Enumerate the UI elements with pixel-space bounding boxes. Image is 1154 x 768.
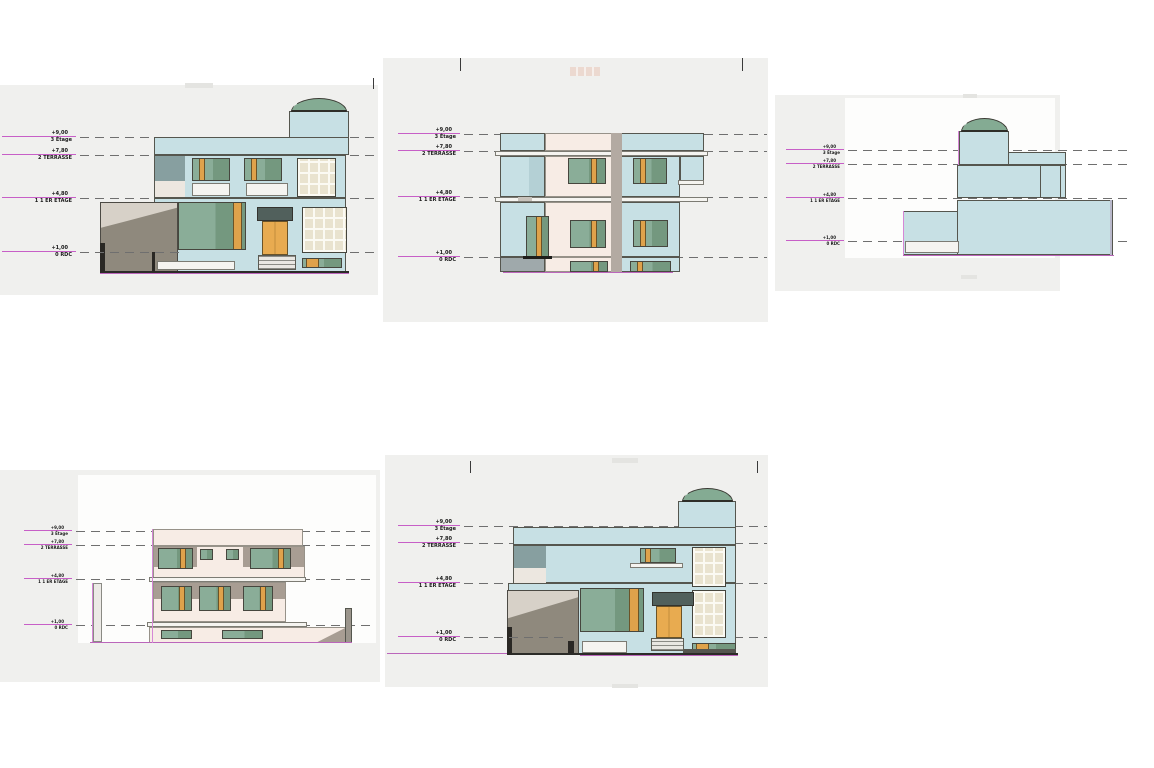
level-label: +9,003 Étage — [786, 144, 844, 155]
level-label: +7,802 TERRASSE — [398, 536, 460, 549]
window — [633, 220, 668, 247]
edge-marker — [1110, 200, 1112, 255]
level-label: +4,801 1 ER ETAGE — [786, 192, 844, 203]
window-frame-strip — [233, 203, 242, 249]
window — [161, 586, 192, 611]
level-label: +9,003 Étage — [2, 130, 76, 143]
floor-slab — [149, 577, 306, 582]
level-label: +9,003 Étage — [24, 525, 72, 536]
title-mark — [612, 458, 638, 463]
dome-tower — [678, 501, 736, 528]
base-left — [500, 257, 545, 272]
window — [244, 158, 282, 181]
edge-marker — [152, 529, 153, 643]
window-frame-strip — [260, 587, 266, 610]
window-frame-strip — [591, 221, 597, 247]
ground-line-magenta — [100, 273, 349, 274]
ground-line-magenta — [90, 642, 352, 643]
ground-line-magenta — [503, 272, 673, 273]
slate-panel — [514, 546, 546, 568]
entry-door — [656, 606, 682, 638]
reference-tick — [460, 58, 461, 71]
level-label: +4,801 1 ER ETAGE — [2, 191, 76, 204]
window-frame-strip — [278, 549, 284, 568]
level-label: +9,003 Étage — [398, 127, 460, 140]
roof-band-left — [500, 133, 545, 151]
window-frame-strip — [180, 549, 186, 568]
wall-shadow-fold — [529, 157, 544, 196]
window-frame-strip — [199, 159, 205, 180]
level-label: +4,801 1 ER ETAGE — [24, 573, 72, 584]
large-window — [580, 588, 644, 632]
window — [633, 158, 667, 184]
level-label: +7,802 TERRASSE — [398, 144, 460, 157]
level-label: +7,802 TERRASSE — [2, 148, 76, 161]
level-dash-line — [80, 252, 180, 253]
window-frame-strip — [251, 159, 257, 180]
level-label: +7,802 TERRASSE — [786, 158, 844, 169]
window-frame-strip — [640, 159, 646, 183]
roof-band — [153, 529, 303, 546]
window-frame-strip — [637, 262, 643, 271]
edge-marker — [958, 131, 959, 165]
ground-line-magenta — [387, 653, 507, 654]
balcony-window — [640, 548, 676, 563]
level-label: +1,000 RDC — [398, 630, 460, 643]
roof-band-center — [545, 133, 618, 151]
wall-divider — [1060, 165, 1061, 198]
basement-window — [630, 261, 671, 272]
window-frame-strip — [593, 262, 599, 271]
level-dash-line — [464, 637, 564, 638]
level-label: +4,801 1 ER ETAGE — [398, 190, 460, 203]
ground-line — [100, 271, 349, 273]
large-window — [178, 202, 246, 250]
cream-panel — [514, 568, 546, 583]
edge-marker — [903, 211, 904, 255]
pilaster-shadow — [611, 133, 622, 272]
mullioned-window — [302, 207, 347, 253]
garage-door-strip — [582, 641, 627, 653]
window-frame-strip — [218, 587, 224, 610]
reference-tick — [757, 461, 758, 473]
garage-post — [507, 627, 512, 655]
window — [568, 158, 606, 184]
entry-stairs — [258, 255, 296, 270]
door-header — [257, 207, 293, 221]
level-label: +1,000 RDC — [786, 235, 844, 246]
small-window — [200, 549, 213, 560]
slate-panel — [155, 156, 185, 181]
window-frame-strip — [306, 259, 319, 267]
fence-post — [345, 608, 352, 643]
garage-door-strip — [157, 261, 235, 270]
step-slab — [678, 180, 704, 185]
terrace-band — [1008, 152, 1066, 165]
balcony-slab — [630, 563, 683, 568]
roof-band-right — [618, 133, 704, 151]
mullioned-window — [297, 158, 336, 197]
title-mark — [185, 83, 213, 88]
floor-slab — [147, 622, 307, 627]
level-dash-line — [848, 198, 1133, 199]
window-frame-strip — [640, 221, 646, 246]
slab-vent — [518, 197, 532, 201]
dome-tower — [959, 131, 1009, 165]
roof-band — [154, 137, 349, 155]
ground-line — [508, 653, 738, 655]
balcony-panel — [246, 183, 288, 196]
french-door — [526, 216, 549, 257]
second-floor-block — [957, 165, 1066, 198]
low-window — [302, 258, 342, 268]
basement-window — [570, 261, 608, 272]
entry-stairs — [651, 638, 684, 651]
window-frame-strip — [179, 587, 185, 610]
window-frame-strip — [629, 589, 639, 631]
level-label: +1,000 RDC — [24, 619, 72, 630]
title-mark — [963, 94, 977, 98]
ground-line-magenta — [580, 655, 738, 656]
level-label: +1,000 RDC — [398, 250, 460, 263]
edge-marker — [92, 583, 93, 642]
level-label: +7,802 TERRASSE — [24, 539, 72, 550]
window-frame-strip — [536, 217, 542, 256]
elevation-sheet: +9,003 Étage +7,802 TERRASSE +4,801 1 ER… — [0, 0, 1154, 768]
roof-vent-marks — [570, 67, 600, 76]
ground-floor-block — [957, 200, 1113, 255]
window — [199, 586, 231, 611]
garage-post — [568, 641, 574, 653]
garage-post — [152, 252, 155, 272]
window — [570, 220, 606, 248]
mullioned-window — [692, 547, 726, 587]
reference-tick — [373, 78, 374, 89]
window — [158, 548, 193, 569]
low-window — [222, 630, 263, 639]
wall-divider — [1040, 165, 1041, 198]
ground-line-magenta — [903, 255, 1114, 256]
garage-opening — [905, 241, 959, 253]
door-header — [652, 592, 694, 606]
fence-post — [93, 583, 102, 642]
balcony-panel — [192, 183, 230, 196]
level-label: +4,801 1 ER ETAGE — [398, 576, 460, 589]
cream-panel — [155, 181, 185, 197]
entry-door — [262, 221, 288, 255]
title-mark — [612, 684, 638, 688]
garage-post — [100, 243, 105, 272]
window — [192, 158, 230, 181]
title-mark — [961, 275, 977, 279]
level-label: +1,000 RDC — [2, 245, 76, 258]
reference-tick — [742, 58, 743, 71]
window — [250, 548, 291, 569]
second-floor-right-ext — [680, 156, 704, 182]
window-frame-strip — [591, 159, 597, 183]
window-frame-strip — [645, 549, 651, 562]
level-label: +9,003 Étage — [398, 519, 460, 532]
door-sill — [523, 256, 552, 259]
roof-band — [513, 527, 736, 545]
mullioned-window — [692, 590, 726, 638]
low-window — [161, 630, 192, 639]
small-window — [226, 549, 239, 560]
reference-tick — [470, 461, 471, 473]
window — [243, 586, 273, 611]
